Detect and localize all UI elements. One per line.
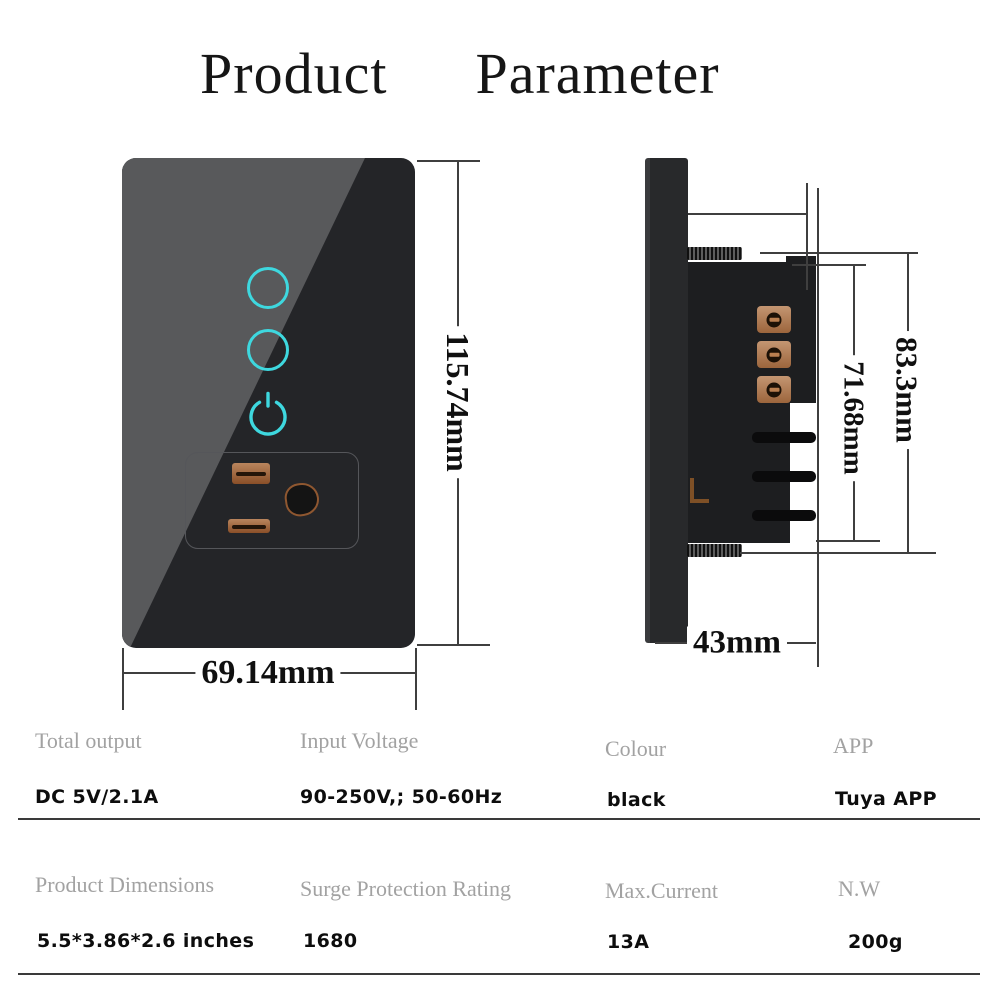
spec-value-net-weight: 200g [848, 931, 903, 953]
side-view-faceplate [645, 158, 688, 643]
spec-value-product-dimensions: 5.5*3.86*2.6 inches [37, 930, 254, 952]
spec-label-input-voltage: Input Voltage [300, 728, 418, 754]
vent-slot-1 [752, 432, 816, 443]
spec-label-product-dimensions: Product Dimensions [35, 872, 214, 898]
terminal-screw-3 [757, 376, 791, 403]
terminal-screw-hole [767, 382, 782, 397]
spec-value-colour: black [607, 789, 666, 811]
front-height-label: 115.74mm [442, 326, 474, 478]
dim-tick [792, 264, 866, 266]
front-view-panel [122, 158, 415, 648]
terminal-screw-hole [767, 312, 782, 327]
terminal-screw-2 [757, 341, 791, 368]
dim-line [688, 213, 806, 215]
us-socket-outline [185, 452, 359, 549]
screw-slot [769, 318, 779, 322]
mount-screw-bottom [687, 544, 742, 557]
mount-screw-top [687, 247, 742, 260]
terminal-screw-1 [757, 306, 791, 333]
spec-label-total-output: Total output [35, 728, 142, 754]
product-parameter-sheet: ProductParameter 115.74mm 69.14mm [0, 0, 1001, 1001]
table-separator-2 [18, 973, 980, 975]
spec-value-app: Tuya APP [835, 788, 937, 810]
touch-button-2-icon [247, 329, 289, 371]
socket-slot-bottom-groove [232, 525, 266, 529]
spec-value-total-output: DC 5V/2.1A [35, 786, 159, 808]
spec-label-app: APP [833, 733, 873, 759]
dim-tick [760, 252, 918, 254]
spec-label-max-current: Max.Current [605, 878, 718, 904]
socket-ground-hole [283, 481, 321, 518]
dim-ext [817, 188, 819, 667]
spec-label-surge-rating: Surge Protection Rating [300, 876, 511, 902]
screw-slot [769, 353, 779, 357]
dim-ext [415, 648, 417, 710]
side-body-height-label: 71.68mm [839, 355, 868, 481]
copper-clip [690, 478, 709, 503]
touch-button-1-icon [247, 267, 289, 309]
vent-slot-3 [752, 510, 816, 521]
dim-tick [417, 644, 490, 646]
screw-slot [769, 388, 779, 392]
power-icon [244, 389, 292, 437]
dim-ext [806, 183, 808, 290]
dim-tick [816, 540, 880, 542]
vent-slot-2 [752, 471, 816, 482]
spec-label-net-weight: N.W [838, 876, 880, 902]
socket-slot-top-groove [236, 472, 266, 476]
socket-slot-top [232, 463, 270, 484]
side-overall-height-label: 83.3mm [892, 331, 923, 449]
spec-value-max-current: 13A [607, 931, 649, 953]
page-title-word1: Product [200, 41, 387, 106]
page-title-word2: Parameter [475, 41, 719, 106]
dim-ext [122, 648, 124, 710]
front-width-label: 69.14mm [195, 656, 340, 690]
page-title: ProductParameter [200, 40, 720, 107]
spec-label-colour: Colour [605, 736, 666, 762]
table-separator-1 [18, 818, 980, 820]
spec-value-input-voltage: 90-250V,; 50-60Hz [300, 786, 502, 808]
terminal-screw-hole [767, 347, 782, 362]
socket-slot-bottom [228, 519, 270, 533]
dim-tick [417, 160, 480, 162]
spec-value-surge-rating: 1680 [303, 930, 357, 952]
side-depth-label: 43mm [687, 627, 787, 660]
